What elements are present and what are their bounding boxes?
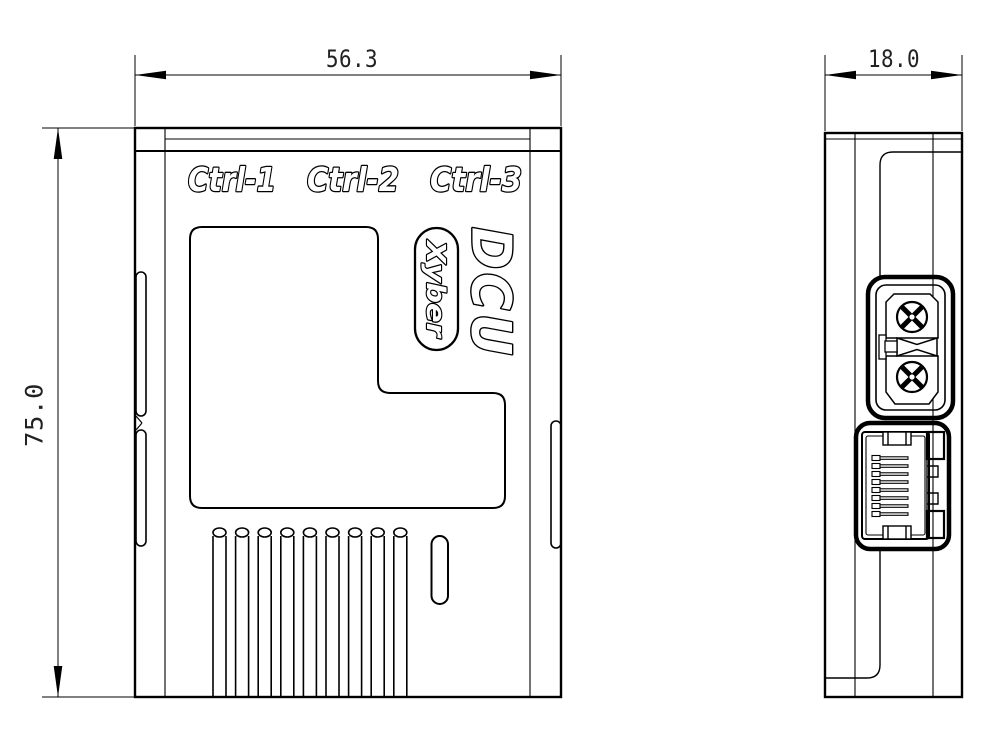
front-view: Ctrl-1 Ctrl-2 Ctrl-3 DCU Xyber (135, 128, 561, 697)
brand-badge-text: Xyber (420, 239, 450, 340)
xt30-terminal-top (897, 302, 927, 332)
vent-slot (281, 528, 294, 696)
rj45-jack-inner (866, 436, 925, 535)
vent-slot (213, 528, 226, 696)
port-labels: Ctrl-1 Ctrl-2 Ctrl-3 (188, 160, 522, 199)
arrowhead-left (825, 71, 856, 80)
brand-badge: Xyber (415, 228, 458, 350)
dcu-enclosure-drawing: Ctrl-1 Ctrl-2 Ctrl-3 DCU Xyber (0, 0, 1000, 737)
port-label-ctrl1: Ctrl-1 (188, 160, 276, 199)
rj45-top-tab (883, 432, 911, 445)
xt30-terminal-bottom (897, 362, 927, 392)
left-relief-upper (136, 272, 146, 416)
indicator-slot (432, 536, 449, 604)
relief-pinch-mark (136, 416, 142, 430)
arrowhead-bottom (54, 666, 63, 697)
port-label-ctrl3: Ctrl-3 (430, 160, 522, 199)
xt30-power-connector (868, 277, 953, 418)
left-edge-connector-reliefs (136, 272, 146, 546)
arrowhead-top (54, 128, 63, 159)
width-dimension-text: 56.3 (326, 45, 378, 73)
right-edge-relief (551, 421, 561, 548)
side-view (825, 133, 962, 697)
vent-slot (303, 528, 316, 696)
side-seam-upper (880, 152, 962, 277)
rj45-bottom-tab (883, 526, 911, 539)
port-label-ctrl2: Ctrl-2 (307, 160, 399, 199)
rj45-pins (872, 456, 908, 517)
arrowhead-right (530, 71, 561, 80)
vent-slot (258, 528, 271, 696)
side-seam-lower (825, 548, 880, 678)
depth-dimension-text: 18.0 (868, 45, 920, 73)
vent-slot (326, 528, 339, 696)
vent-slot (236, 528, 249, 696)
rj45-jack-outline (862, 432, 929, 539)
arrowhead-right (931, 71, 962, 80)
dimension-width: 56.3 (135, 45, 561, 126)
rj45-ethernet-port (856, 423, 949, 549)
height-dimension-text: 75.0 (21, 383, 49, 447)
xt30-key-stem (885, 341, 897, 352)
left-relief-lower (136, 430, 146, 546)
technical-drawing-page: Ctrl-1 Ctrl-2 Ctrl-3 DCU Xyber (0, 0, 1000, 737)
xt30-polarity-bowtie (897, 338, 937, 356)
vent-slot (394, 528, 407, 696)
dimension-depth: 18.0 (825, 45, 962, 131)
vent-slot (349, 528, 362, 696)
arrowhead-left (135, 71, 166, 80)
product-name-text: DCU (460, 227, 523, 359)
dimension-height: 75.0 (21, 128, 134, 697)
vent-slot (371, 528, 384, 696)
cooling-vents (213, 528, 407, 696)
